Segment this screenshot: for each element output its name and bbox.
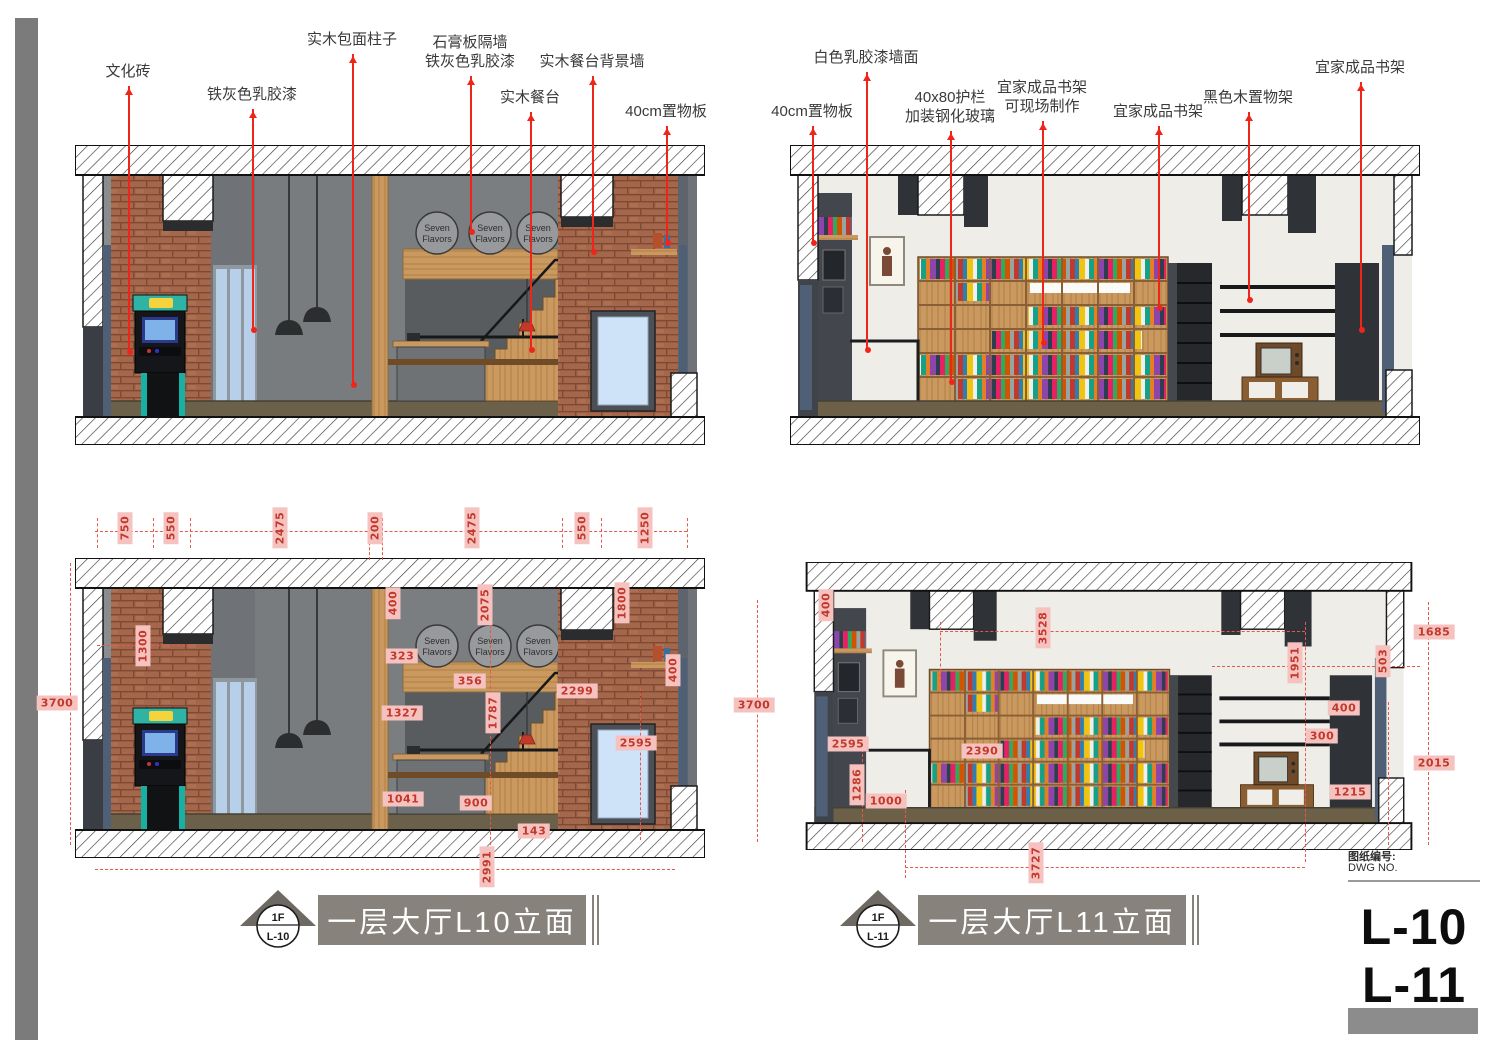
dimension-badge: 550 [575, 512, 590, 544]
material-label: 铁灰色乳胶漆 [207, 85, 297, 104]
dwg-divider [1348, 880, 1480, 882]
material-label: 40cm置物板 [625, 102, 707, 121]
elevation-l10-dimensioned [75, 558, 705, 858]
marker-floor: 1F [272, 912, 285, 924]
dimension-badge: 750 [118, 512, 133, 544]
material-label: 宜家成品书架可现场制作 [997, 78, 1087, 116]
material-label: 文化砖 [105, 62, 150, 81]
dimension-badge: 1685 [1414, 625, 1455, 640]
view-marker-l11: 1F L-11 [838, 888, 918, 950]
marker-code: L-11 [867, 931, 889, 943]
elevation-l11-render [790, 145, 1420, 445]
marker-code: L-10 [267, 931, 290, 943]
dim-tick [153, 518, 154, 548]
dim-tick [687, 518, 688, 548]
dim-line-dashed [905, 867, 1305, 868]
dim-line-dashed [1212, 666, 1420, 667]
material-label: 实木餐台 [500, 88, 560, 107]
dimension-badge: 2475 [465, 508, 480, 549]
elevation-l11-dimensioned [800, 562, 1418, 850]
sheet-number-l11: L-11 [1346, 956, 1482, 1014]
dimension-badge: 3700 [734, 698, 775, 713]
sheet-left-bar [15, 18, 38, 1040]
dim-line-dashed [70, 563, 71, 845]
material-label: 白色乳胶漆墙面 [813, 48, 918, 67]
dimension-badge: 3700 [37, 696, 78, 711]
dim-tick [940, 622, 941, 682]
material-label: 实木餐台背景墙 [539, 52, 644, 71]
dim-line-dashed [1305, 622, 1306, 862]
sheet-bottom-bar [1348, 1008, 1478, 1034]
elevation-l10-render [75, 145, 705, 445]
material-label: 40cm置物板 [771, 102, 853, 121]
material-label: 黑色木置物架 [1203, 88, 1293, 107]
dim-line-dashed [95, 869, 675, 870]
dim-tick [190, 518, 191, 548]
dim-tick [369, 518, 370, 560]
title-bar-l11: 一层大厅L11立面 [918, 895, 1186, 945]
dim-line-dashed [757, 600, 758, 842]
dimension-badge: 2015 [1414, 756, 1455, 771]
material-label: 实木包面柱子 [307, 30, 397, 49]
dim-tick [562, 518, 563, 548]
dim-line-dashed [490, 615, 491, 865]
sheet-number-l10: L-10 [1346, 898, 1482, 956]
dim-line-dashed [95, 531, 687, 532]
dwg-number-en: DWG NO. [1348, 862, 1398, 874]
dim-line-dashed [640, 688, 641, 840]
dimension-badge: 2475 [273, 508, 288, 549]
dim-line-dashed [97, 645, 190, 646]
dim-tick [905, 790, 906, 878]
drawing-sheet: Seven Flavors [0, 0, 1500, 1061]
view-marker-l10: 1F L-10 [238, 888, 318, 950]
dim-tick [382, 518, 383, 560]
dim-line-dashed [1428, 602, 1429, 845]
title-bar-l10: 一层大厅L10立面 [318, 895, 586, 945]
dim-line-dashed [1388, 702, 1389, 845]
title-bar-end-lines [592, 895, 599, 945]
marker-floor: 1F [872, 912, 885, 924]
material-label: 40x80护栏加装钢化玻璃 [905, 88, 995, 126]
dimension-badge: 1250 [638, 508, 653, 549]
dim-tick [97, 518, 98, 548]
dimension-badge: 550 [164, 512, 179, 544]
title-text-l11: 一层大厅L11立面 [928, 899, 1175, 941]
title-text-l10: 一层大厅L10立面 [327, 899, 576, 941]
title-bar-end-lines [1192, 895, 1199, 945]
material-label: 宜家成品书架 [1113, 102, 1203, 121]
dim-tick [601, 518, 602, 548]
material-label: 宜家成品书架 [1315, 58, 1405, 77]
material-label: 石膏板隔墙铁灰色乳胶漆 [425, 33, 515, 71]
dim-line-dashed [860, 801, 905, 802]
dim-line-dashed [940, 631, 1305, 632]
dim-line-dashed [862, 744, 863, 842]
